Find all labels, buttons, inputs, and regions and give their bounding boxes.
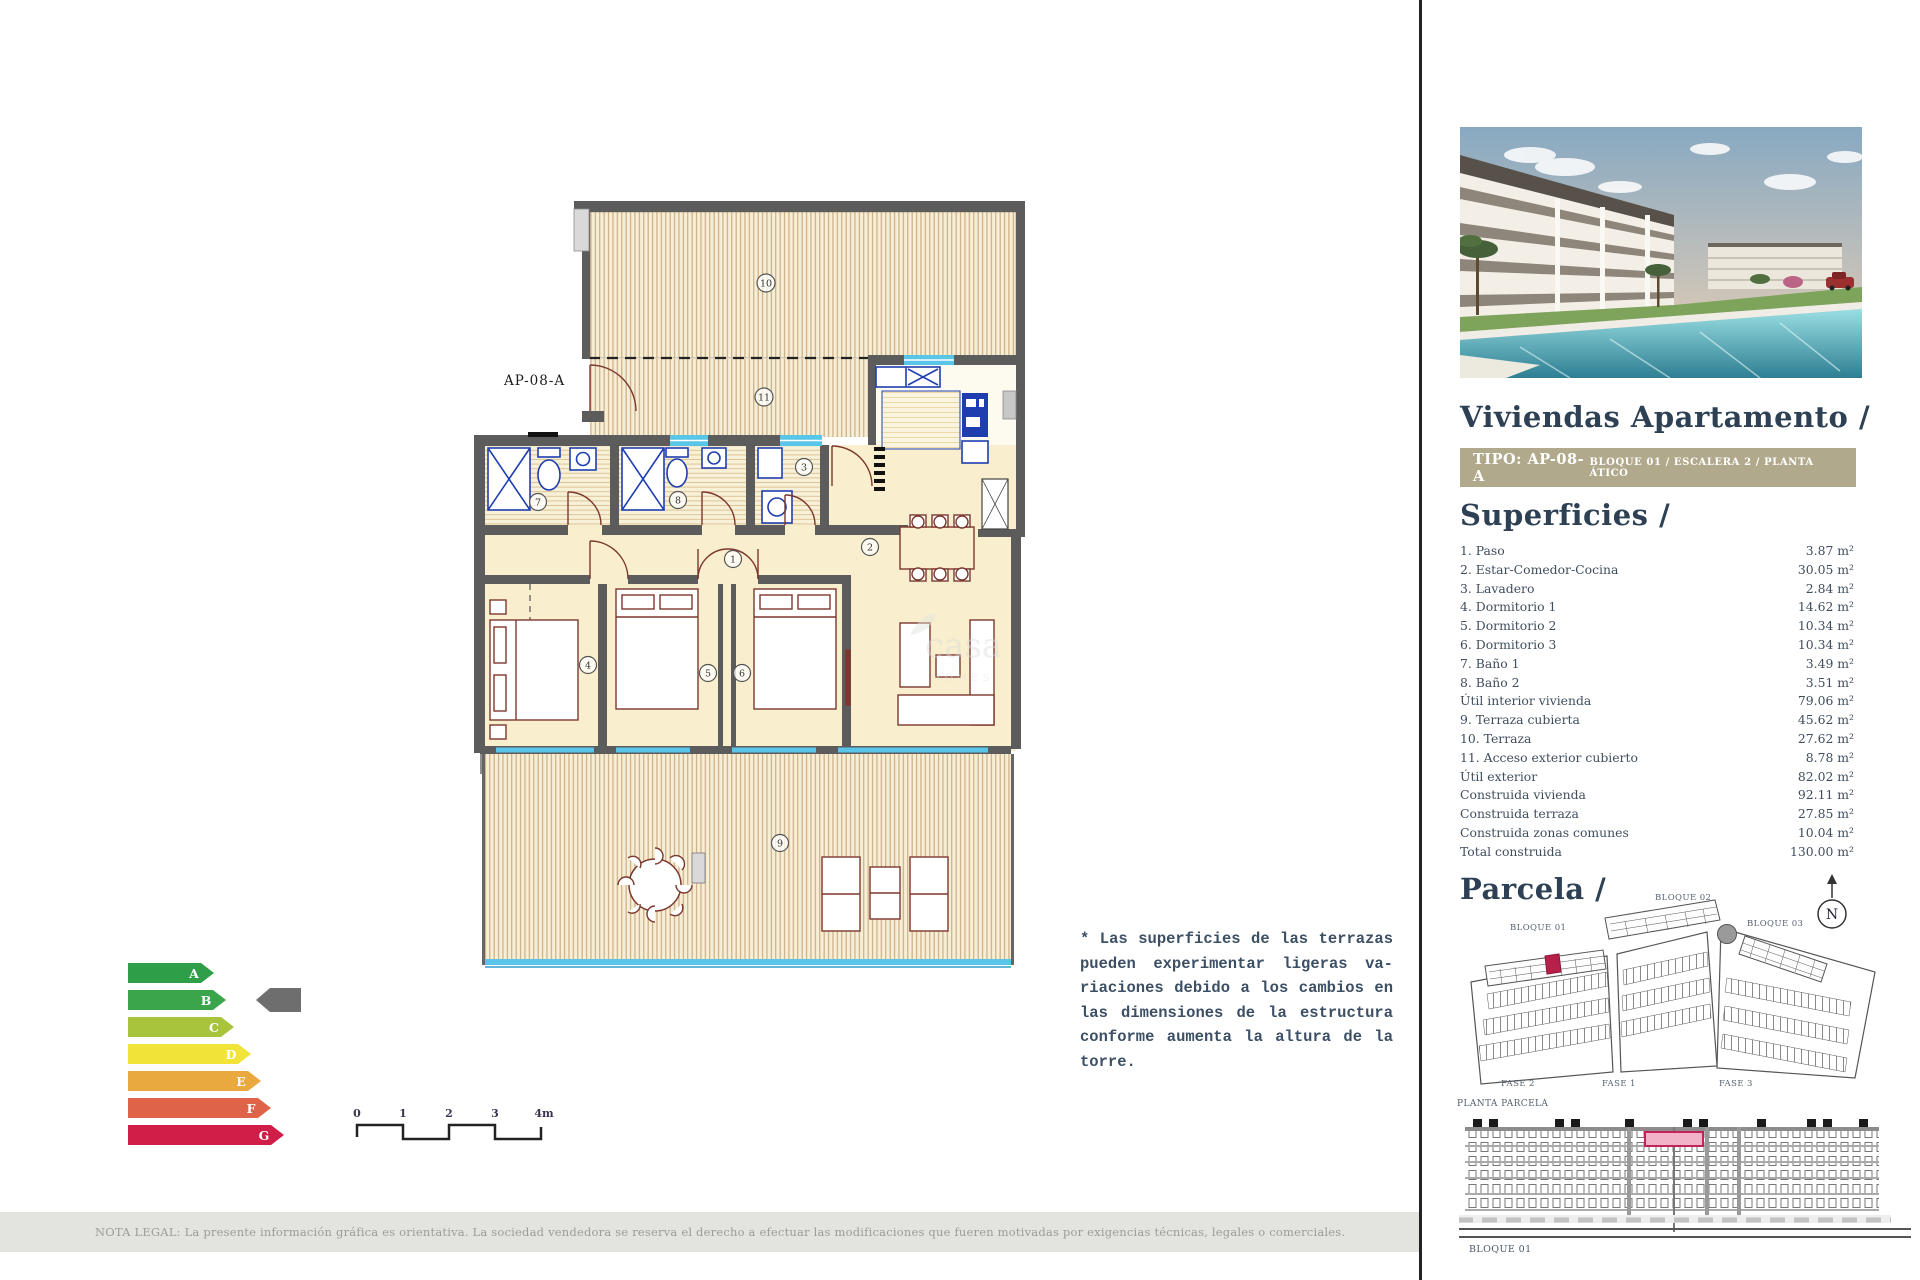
svg-text:FASE 1: FASE 1 [1602, 1079, 1636, 1089]
svg-text:E: E [236, 1074, 246, 1089]
ground-deck [1459, 1215, 1891, 1223]
parapet [1473, 1119, 1868, 1128]
highlighted-unit-elevation [1645, 1132, 1703, 1146]
svg-text:0: 0 [353, 1107, 361, 1120]
block-location-label: BLOQUE 01 / ESCALERA 2 / PLANTA ÁTICO [1589, 457, 1843, 479]
svg-text:1: 1 [399, 1107, 407, 1120]
energy-rating-chart: A B C D E F G [120, 950, 320, 1150]
svg-text:G: G [259, 1128, 270, 1143]
table-row: 11. Acceso exterior cubierto8.78 m² [1460, 750, 1854, 769]
roof-band [1465, 1127, 1879, 1131]
elevation-caption: BLOQUE 01 [1469, 1244, 1532, 1255]
row-value: 82.02 m² [1798, 769, 1854, 784]
table-row: 6. Dormitorio 310.34 m² [1460, 637, 1854, 656]
unit-label: AP-08-A [503, 373, 565, 389]
energy-arrows: A B C D E F G [128, 963, 284, 1145]
svg-text:HOMES: HOMES [932, 673, 993, 684]
row-label: Construida terraza [1460, 806, 1579, 821]
row-value: 79.06 m² [1798, 693, 1854, 708]
row-label: 8. Baño 2 [1460, 675, 1520, 690]
table-row: 9. Terraza cubierta45.62 m² [1460, 712, 1854, 731]
north-compass: N [1818, 874, 1846, 928]
svg-text:1: 1 [730, 555, 736, 566]
table-row: 1. Paso3.87 m² [1460, 543, 1854, 562]
highlighted-unit [1545, 954, 1561, 974]
pier [1705, 1127, 1709, 1215]
pink-bush [1783, 276, 1803, 288]
svg-text:casa: casa [925, 626, 1002, 666]
row-label: 6. Dormitorio 3 [1460, 637, 1556, 652]
row-label: 9. Terraza cubierta [1460, 712, 1580, 727]
svg-text:11: 11 [758, 393, 770, 404]
svg-text:4: 4 [585, 661, 591, 672]
parcel-fase1 [1605, 900, 1720, 1072]
row-value: 3.87 m² [1806, 543, 1854, 558]
table-row: 3. Lavadero2.84 m² [1460, 581, 1854, 600]
parcel-fase3 [1717, 928, 1875, 1078]
far-building [1708, 243, 1842, 289]
svg-text:F: F [247, 1101, 256, 1116]
svg-text:9: 9 [777, 839, 783, 850]
superficies-title: Superficies / [1460, 498, 1670, 532]
table-row: 2. Estar-Comedor-Cocina30.05 m² [1460, 562, 1854, 581]
row-value: 3.49 m² [1806, 656, 1854, 671]
pier [1627, 1127, 1631, 1215]
terrace-note: * Las superficies de las terrazas pueden… [1080, 927, 1393, 1075]
terrace-9 [482, 754, 1014, 967]
row-value: 3.51 m² [1806, 675, 1854, 690]
row-value: 10.04 m² [1798, 825, 1854, 840]
row-value: 45.62 m² [1798, 712, 1854, 727]
row-label: Construida vivienda [1460, 787, 1586, 802]
note-line: las dimensiones de la estructura [1080, 1001, 1393, 1026]
svg-text:C: C [209, 1020, 219, 1035]
row-label: 11. Acceso exterior cubierto [1460, 750, 1638, 765]
scale-bar: 0 1 2 3 4m [350, 1103, 560, 1148]
row-label: Útil exterior [1460, 769, 1537, 784]
svg-text:FASE 3: FASE 3 [1719, 1079, 1753, 1089]
table-row: Útil exterior82.02 m² [1460, 769, 1854, 788]
svg-text:A: A [188, 966, 199, 981]
row-label: 3. Lavadero [1460, 581, 1534, 596]
row-label: Útil interior vivienda [1460, 693, 1591, 708]
table-row: Construida vivienda92.11 m² [1460, 787, 1854, 806]
kitchen-island [882, 391, 960, 449]
svg-text:FASE 2: FASE 2 [1501, 1079, 1535, 1089]
legal-note-text: NOTA LEGAL: La presente información gráf… [95, 1225, 1345, 1239]
row-value: 27.62 m² [1798, 731, 1854, 746]
pillar [574, 209, 589, 251]
row-value: 27.85 m² [1798, 806, 1854, 821]
lintel [528, 432, 558, 437]
parcel-fase2 [1471, 950, 1613, 1084]
type-label: TIPO: AP-08-A [1473, 451, 1589, 485]
row-value: 130.00 m² [1790, 844, 1854, 859]
ground-line [1459, 1236, 1911, 1238]
note-line: riaciones debido a los cambios en [1080, 976, 1393, 1001]
row-value: 30.05 m² [1798, 562, 1854, 577]
row-value: 8.78 m² [1806, 750, 1854, 765]
svg-text:2: 2 [867, 543, 873, 554]
ground-line [1459, 1228, 1911, 1230]
note-line: torre. [1080, 1050, 1393, 1075]
svg-text:BLOQUE 03: BLOQUE 03 [1747, 919, 1803, 929]
svg-text:4m: 4m [534, 1107, 554, 1120]
svg-text:B: B [201, 993, 212, 1008]
svg-text:2: 2 [445, 1107, 453, 1120]
type-banner: TIPO: AP-08-A BLOQUE 01 / ESCALERA 2 / P… [1460, 448, 1856, 487]
closet [982, 479, 1008, 529]
svg-text:5: 5 [705, 669, 711, 680]
row-value: 10.34 m² [1798, 637, 1854, 652]
plaza-circle [1718, 925, 1737, 944]
note-line: conforme aumenta la altura de la [1080, 1025, 1393, 1050]
row-value: 92.11 m² [1798, 787, 1854, 802]
table-row: 5. Dormitorio 210.34 m² [1460, 618, 1854, 637]
row-label: 7. Baño 1 [1460, 656, 1520, 671]
table-row: 7. Baño 13.49 m² [1460, 656, 1854, 675]
table-row: 8. Baño 23.51 m² [1460, 675, 1854, 694]
row-value: 14.62 m² [1798, 599, 1854, 614]
brochure-page: casa HOMES AP-08-A 1 2 3 4 5 6 7 8 9 10 … [0, 0, 1920, 1280]
row-label: Total construida [1460, 844, 1562, 859]
table-row: Total construida130.00 m² [1460, 844, 1854, 863]
site-plan: BLOQUE 01 BLOQUE 02 BLOQUE 03 FASE 2 FAS… [1455, 870, 1920, 1115]
svg-text:N: N [1826, 907, 1838, 923]
note-line: pueden experimentar ligeras va- [1080, 952, 1393, 977]
svg-text:BLOQUE 01: BLOQUE 01 [1510, 923, 1566, 933]
note-line: * Las superficies de las terrazas [1080, 927, 1393, 952]
floor-plan: casa HOMES AP-08-A 1 2 3 4 5 6 7 8 9 10 … [470, 195, 1030, 975]
svg-text:7: 7 [535, 498, 541, 509]
row-label: 1. Paso [1460, 543, 1505, 558]
row-value: 10.34 m² [1798, 618, 1854, 633]
row-label: 2. Estar-Comedor-Cocina [1460, 562, 1618, 577]
table-row: 10. Terraza27.62 m² [1460, 731, 1854, 750]
legal-note-bar: NOTA LEGAL: La presente información gráf… [0, 1212, 1419, 1252]
superficies-table: 1. Paso3.87 m² 2. Estar-Comedor-Cocina30… [1460, 543, 1854, 863]
pier [1737, 1127, 1741, 1215]
table-row: Construida zonas comunes10.04 m² [1460, 825, 1854, 844]
scale-bar-line [357, 1125, 541, 1139]
svg-text:BLOQUE 02: BLOQUE 02 [1655, 893, 1711, 903]
svg-text:8: 8 [675, 496, 681, 507]
row-label: Construida zonas comunes [1460, 825, 1629, 840]
row-label: 10. Terraza [1460, 731, 1531, 746]
vertical-divider [1419, 0, 1422, 1280]
energy-indicator-arrow [256, 988, 301, 1012]
row-label: 5. Dormitorio 2 [1460, 618, 1556, 633]
table-row: Útil interior vivienda79.06 m² [1460, 693, 1854, 712]
svg-text:3: 3 [491, 1107, 499, 1120]
svg-text:D: D [226, 1047, 237, 1062]
svg-text:PLANTA PARCELA: PLANTA PARCELA [1457, 1099, 1548, 1109]
row-label: 4. Dormitorio 1 [1460, 599, 1556, 614]
svg-text:6: 6 [739, 669, 745, 680]
elevation-drawing: BLOQUE 01 [1455, 1112, 1920, 1257]
page-title: Viviendas Apartamento / [1460, 400, 1870, 434]
table-row: Construida terraza27.85 m² [1460, 806, 1854, 825]
table-row: 4. Dormitorio 114.62 m² [1460, 599, 1854, 618]
row-value: 2.84 m² [1806, 581, 1854, 596]
building-photo [1460, 127, 1862, 378]
svg-text:3: 3 [801, 463, 807, 474]
svg-text:10: 10 [760, 279, 772, 290]
